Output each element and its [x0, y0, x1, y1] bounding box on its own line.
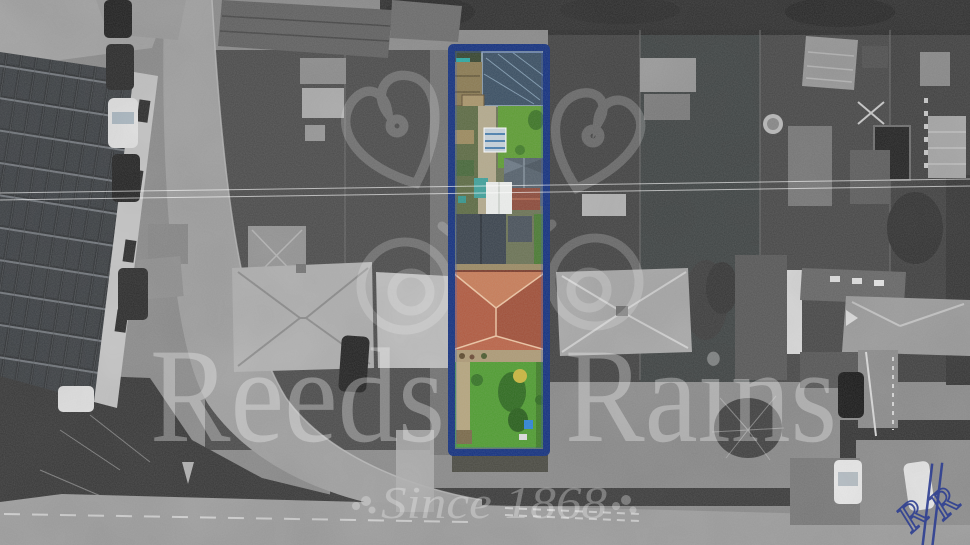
aerial-photo: Reeds Rains Since 1868: [0, 0, 970, 545]
property-photo: Reeds Rains Since 1868: [0, 0, 970, 545]
film-grain-overlay: [0, 0, 970, 545]
